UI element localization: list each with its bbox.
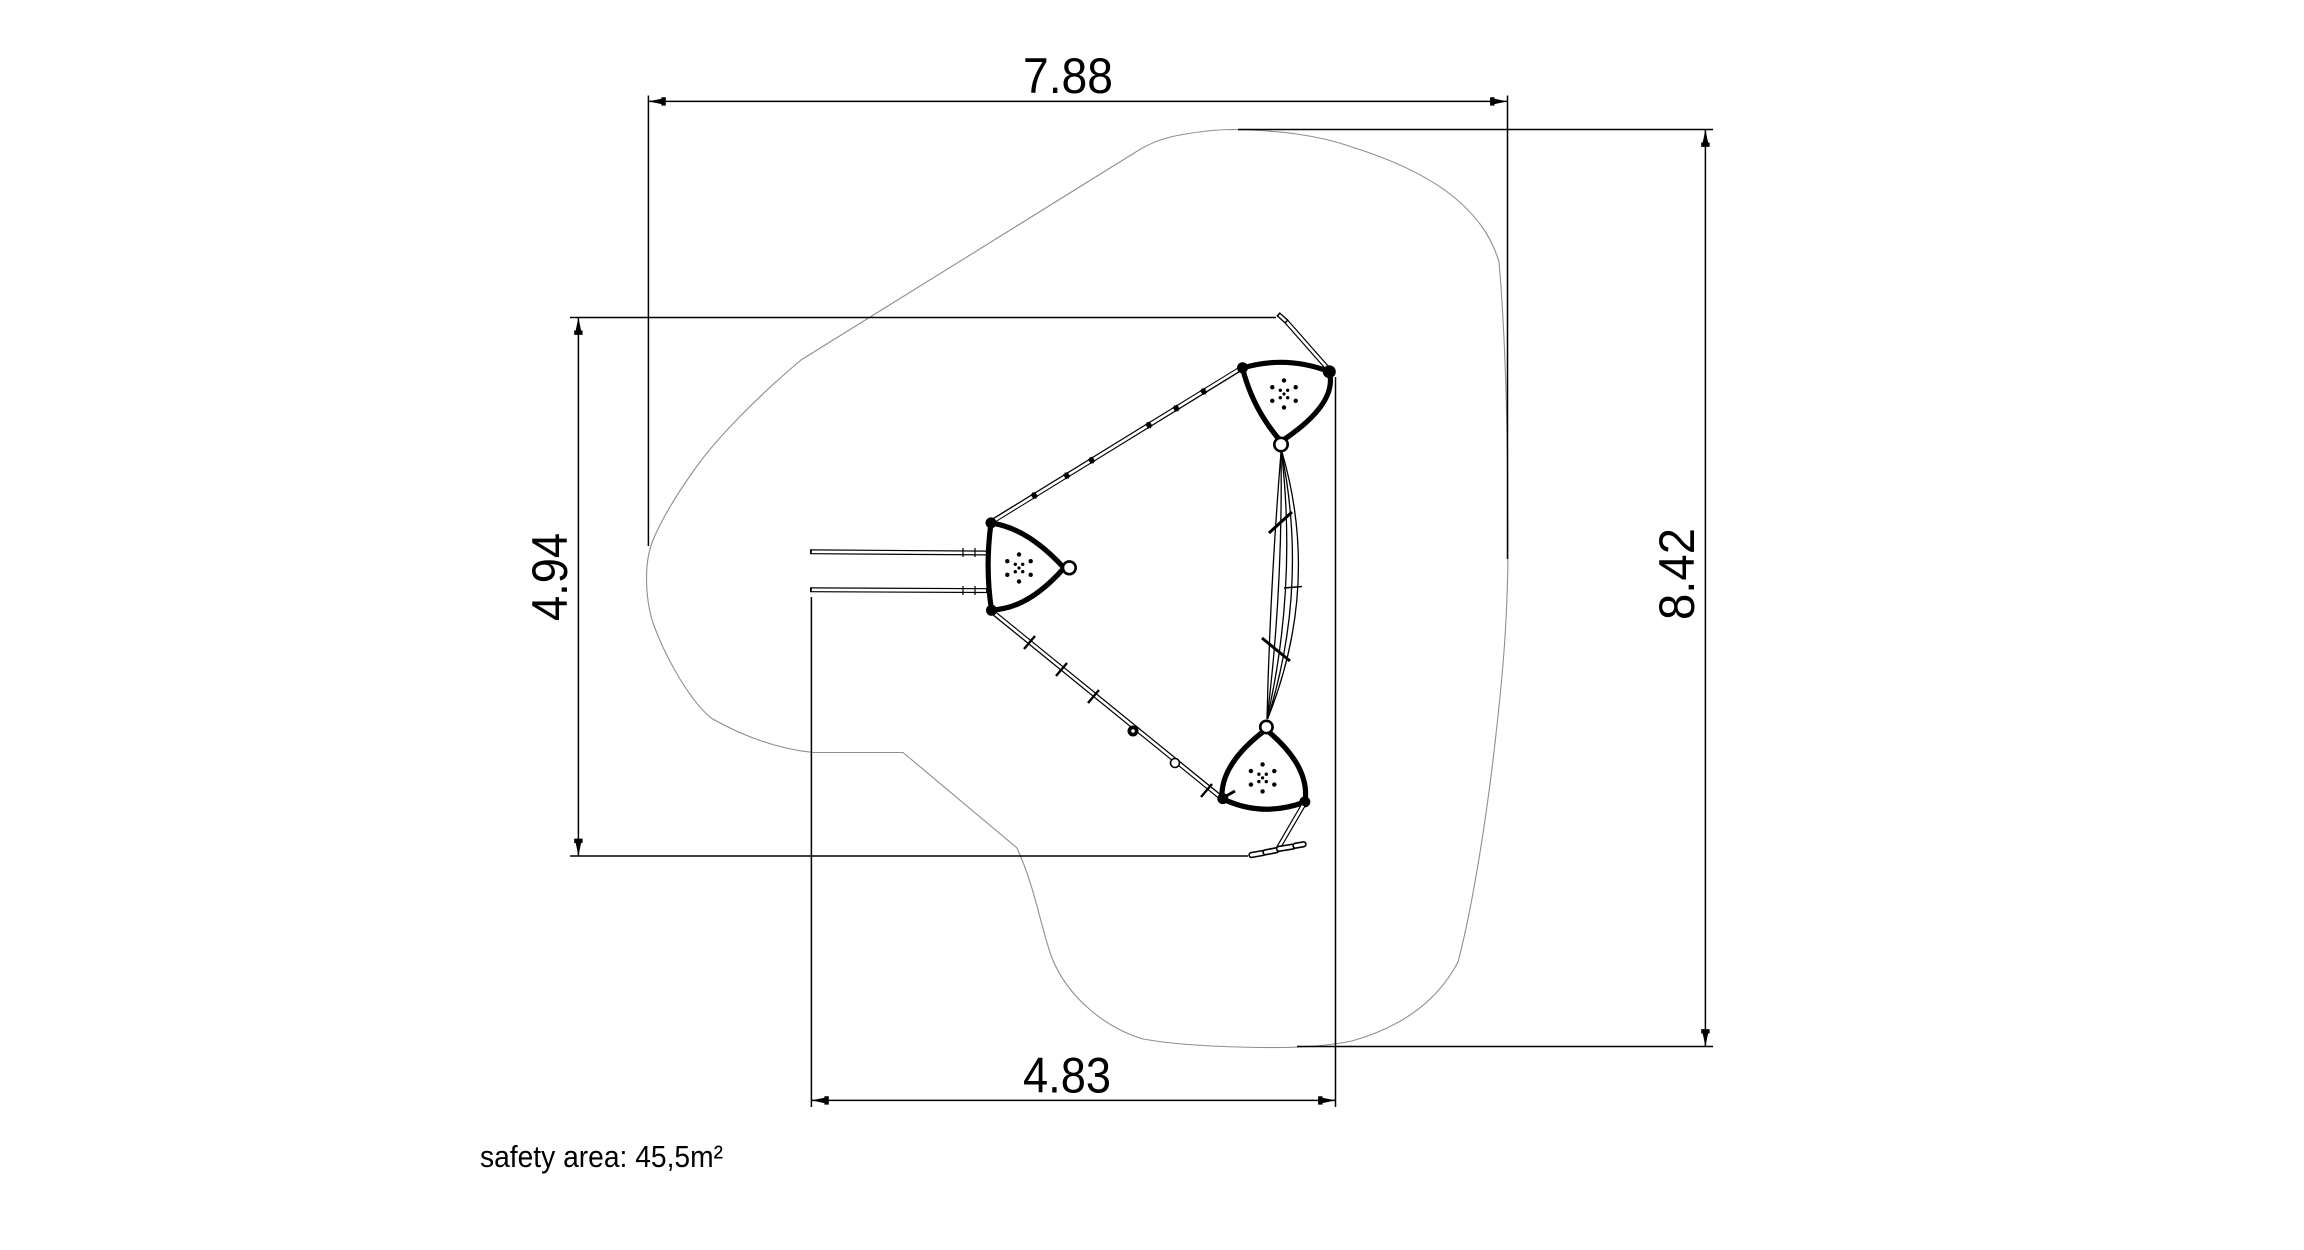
svg-text:4.83: 4.83: [1023, 1048, 1111, 1104]
svg-text:safety area: 45,5m²: safety area: 45,5m²: [480, 1139, 723, 1174]
svg-text:4.94: 4.94: [522, 533, 578, 621]
svg-text:7.88: 7.88: [1023, 48, 1113, 104]
svg-text:8.42: 8.42: [1649, 528, 1705, 620]
